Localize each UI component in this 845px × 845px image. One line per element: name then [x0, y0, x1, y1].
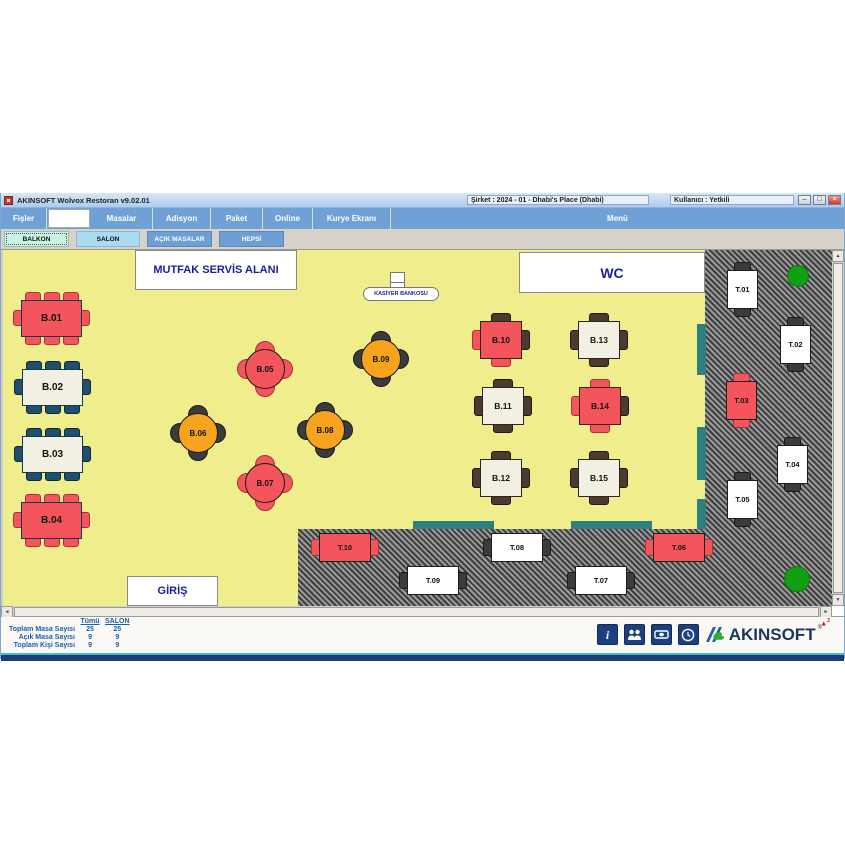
minimize-button[interactable]: – [798, 195, 811, 205]
cashier-desk-divider [391, 282, 404, 283]
table-top: T.10 [319, 533, 371, 562]
app-window: AKINSOFT Wolvox Restoran v9.02.01 Şirket… [0, 193, 845, 659]
stats-header-spacer [7, 617, 77, 625]
table-B.07[interactable]: B.07 [237, 455, 293, 511]
scroll-down-icon[interactable]: ▼ [832, 594, 844, 606]
stats-row: Toplam Kişi Sayısı99 [7, 641, 132, 649]
brand-name: AKINSOFT [729, 625, 816, 645]
stats-col-SALON: SALON [103, 617, 132, 625]
user-label: Kullanıcı : Yetkili [670, 195, 794, 205]
users-icon[interactable] [624, 624, 645, 645]
menu-item-4[interactable]: Online [263, 208, 313, 229]
table-top: B.13 [578, 321, 620, 359]
table-top: T.01 [727, 270, 758, 309]
menu-bar: FişlerMasalarAdisyonPaketOnlineKurye Ekr… [1, 208, 844, 229]
table-B.09[interactable]: B.09 [353, 331, 409, 387]
stats-value: 9 [103, 633, 132, 641]
menu-item-fisler[interactable]: Fişler [1, 208, 47, 229]
fis-input[interactable] [48, 209, 90, 228]
table-top: T.03 [726, 381, 757, 420]
table-B.01[interactable]: B.01 [13, 292, 90, 345]
table-B.15[interactable]: B.15 [570, 451, 628, 505]
table-top: B.12 [480, 459, 522, 497]
table-top: B.04 [21, 502, 82, 539]
table-B.11[interactable]: B.11 [474, 379, 532, 433]
svg-text:i: i [606, 628, 610, 641]
page: AKINSOFT Wolvox Restoran v9.02.01 Şirket… [0, 0, 845, 845]
menu-item-2[interactable]: Adisyon [153, 208, 211, 229]
zone-teal-strip-2 [697, 427, 706, 480]
table-top: T.09 [407, 566, 459, 595]
notification-badge: ▲2 [820, 618, 830, 627]
maximize-button[interactable]: □ [813, 195, 826, 205]
stats-col-Tümü: Tümü [77, 617, 103, 625]
akinsoft-logo-mark [705, 626, 727, 643]
akinsoft-logo: AKINSOFT ® ▲2 [705, 625, 830, 645]
menu-item-menu[interactable]: Menü [391, 208, 844, 229]
scroll-up-icon[interactable]: ▲ [832, 250, 844, 262]
table-B.06[interactable]: B.06 [170, 405, 226, 461]
area-label-kasiyer: KASİYER BANKOSU [363, 287, 439, 301]
area-label-mutfak: MUTFAK SERVİS ALANI [135, 250, 297, 290]
company-label: Şirket : 2024 - 01 - Dhabi's Place (Dhab… [467, 195, 649, 205]
table-top: B.07 [245, 463, 285, 503]
table-B.14[interactable]: B.14 [571, 379, 629, 433]
app-icon [4, 196, 13, 205]
table-T.08[interactable]: T.08 [483, 533, 551, 562]
table-top: T.07 [575, 566, 627, 595]
tab-balkon[interactable]: BALKON [4, 231, 69, 247]
clock-icon[interactable] [678, 624, 699, 645]
table-top: B.08 [305, 410, 345, 450]
stats-row-label: Açık Masa Sayısı [7, 633, 77, 641]
stats-value: 9 [103, 641, 132, 649]
table-T.04[interactable]: T.04 [777, 437, 808, 492]
status-bar: TümüSALONToplam Masa Sayısı2525Açık Masa… [1, 617, 844, 653]
table-top: B.03 [22, 436, 83, 473]
menu-item-5[interactable]: Kurye Ekranı [313, 208, 391, 229]
table-B.04[interactable]: B.04 [13, 494, 90, 547]
stats-value: 25 [77, 625, 103, 633]
table-top: T.05 [727, 480, 758, 519]
table-B.13[interactable]: B.13 [570, 313, 628, 367]
floorplan-container: MUTFAK SERVİS ALANIWCGİRİŞKASİYER BANKOS… [1, 249, 844, 617]
stats-value: 25 [103, 625, 132, 633]
zone-plant-top-right [787, 265, 809, 287]
vertical-scrollbar[interactable]: ▲ ▼ [832, 250, 844, 606]
table-top: B.11 [482, 387, 524, 425]
table-top: B.06 [178, 413, 218, 453]
table-T.10[interactable]: T.10 [311, 533, 379, 562]
table-top: T.08 [491, 533, 543, 562]
tab-salon[interactable]: SALON [76, 231, 140, 247]
table-B.03[interactable]: B.03 [14, 428, 91, 481]
horizontal-scroll-thumb[interactable] [14, 607, 819, 617]
table-top: B.09 [361, 339, 401, 379]
table-T.03[interactable]: T.03 [726, 373, 757, 428]
vertical-scroll-thumb[interactable] [833, 263, 843, 593]
zone-teal-strip-5 [571, 521, 652, 529]
stats-value: 9 [77, 633, 103, 641]
table-top: T.02 [780, 325, 811, 364]
table-B.02[interactable]: B.02 [14, 361, 91, 414]
table-top: B.14 [579, 387, 621, 425]
stats-row-label: Toplam Masa Sayısı [7, 625, 77, 633]
info-icon[interactable]: i [597, 624, 618, 645]
table-B.05[interactable]: B.05 [237, 341, 293, 397]
window-title: AKINSOFT Wolvox Restoran v9.02.01 [17, 196, 150, 205]
zone-teal-strip-4 [413, 521, 494, 529]
table-stats: TümüSALONToplam Masa Sayısı2525Açık Masa… [7, 617, 132, 649]
money-icon[interactable] [651, 624, 672, 645]
table-B.12[interactable]: B.12 [472, 451, 530, 505]
table-top: B.05 [245, 349, 285, 389]
table-T.01[interactable]: T.01 [727, 262, 758, 317]
table-top: B.15 [578, 459, 620, 497]
table-top: T.06 [653, 533, 705, 562]
stats-row: Açık Masa Sayısı99 [7, 633, 132, 641]
area-label-wc: WC [519, 252, 705, 293]
table-T.05[interactable]: T.05 [727, 472, 758, 527]
table-B.08[interactable]: B.08 [297, 402, 353, 458]
window-bottom-edge [1, 653, 844, 661]
tab-row: BALKONSALONAÇIK MASALARHEPSİ [1, 229, 844, 249]
table-B.10[interactable]: B.10 [472, 313, 530, 367]
table-T.06[interactable]: T.06 [645, 533, 713, 562]
menu-item-1[interactable]: Masalar [91, 208, 153, 229]
close-button[interactable]: × [828, 195, 841, 205]
menu-item-3[interactable]: Paket [211, 208, 263, 229]
floorplan: MUTFAK SERVİS ALANIWCGİRİŞKASİYER BANKOS… [1, 250, 832, 606]
stats-value: 9 [77, 641, 103, 649]
zone-teal-strip-3 [697, 499, 706, 529]
zone-plant-bottom-right [784, 566, 810, 592]
table-top: T.04 [777, 445, 808, 484]
stats-row: Toplam Masa Sayısı2525 [7, 625, 132, 633]
table-T.07[interactable]: T.07 [567, 566, 635, 595]
stats-row-label: Toplam Kişi Sayısı [7, 641, 77, 649]
area-label-giris: GİRİŞ [127, 576, 218, 606]
stats-header-row: TümüSALON [7, 617, 132, 625]
tab-açik-masalar[interactable]: AÇIK MASALAR [147, 231, 212, 247]
table-T.02[interactable]: T.02 [780, 317, 811, 372]
tab-hepsi̇[interactable]: HEPSİ [219, 231, 284, 247]
table-T.09[interactable]: T.09 [399, 566, 467, 595]
table-top: B.02 [22, 369, 83, 406]
table-top: B.01 [21, 300, 82, 337]
title-bar: AKINSOFT Wolvox Restoran v9.02.01 Şirket… [1, 193, 844, 208]
zone-teal-strip-1 [697, 324, 706, 375]
table-top: B.10 [480, 321, 522, 359]
